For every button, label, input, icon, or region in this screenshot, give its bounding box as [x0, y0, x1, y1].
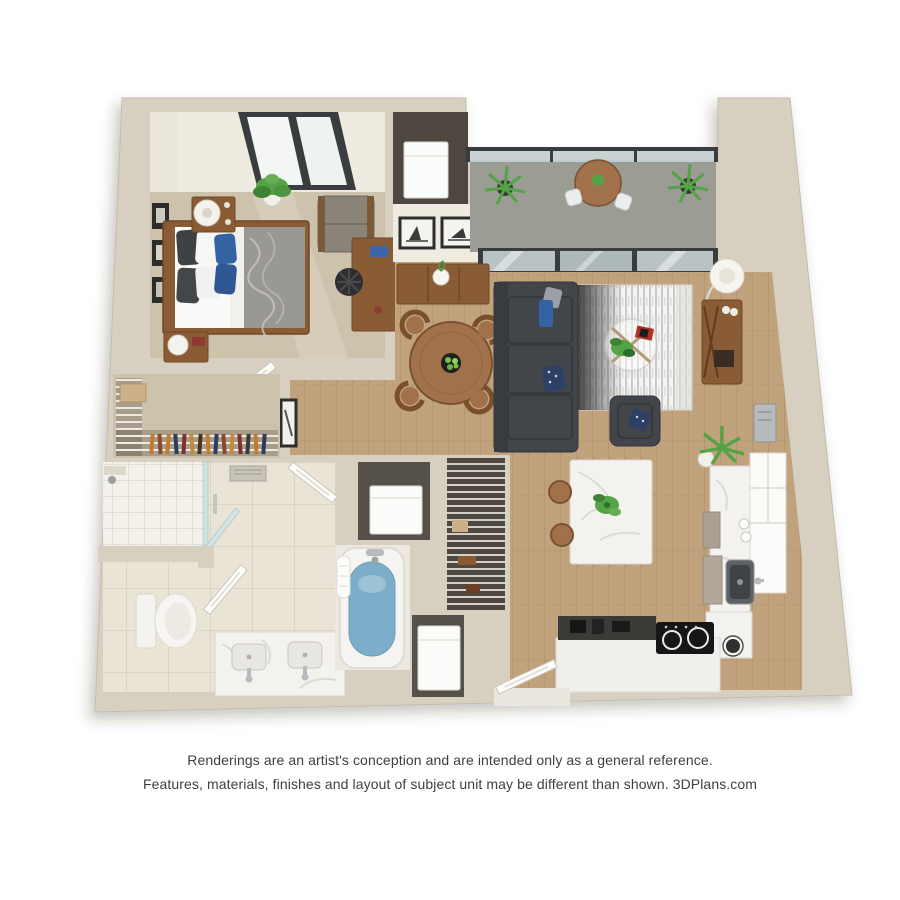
shower-glass: [203, 462, 208, 546]
balcony: [466, 147, 718, 274]
hanging-clothes: [149, 434, 266, 454]
washer-closet: [358, 462, 430, 540]
shelf-item: [466, 584, 480, 593]
bed: [163, 221, 309, 342]
bedroom-window: [238, 112, 356, 190]
towel-bar: [213, 494, 217, 514]
shelf-item: [458, 556, 476, 565]
sliding-glass-door: [478, 248, 718, 274]
book: [192, 337, 205, 346]
walk-in-closet: [113, 374, 280, 458]
disclaimer-line-1: Renderings are an artist's conception an…: [0, 748, 900, 772]
navy-pillow: [541, 364, 566, 392]
linen-closet: [447, 458, 505, 610]
towel: [337, 556, 350, 598]
kettle: [726, 639, 740, 653]
sideboard: [397, 261, 489, 304]
lower-cabinet: [703, 512, 720, 548]
utility-closet: [393, 112, 468, 204]
floorplan-page: Renderings are an artist's conception an…: [0, 0, 900, 900]
canister: [739, 519, 749, 529]
wire-shelving-south: [116, 430, 278, 456]
centerpiece-bowl: [441, 353, 461, 373]
basket: [452, 520, 468, 532]
kitchen-island: [570, 460, 652, 564]
toilet: [136, 594, 197, 648]
disclaimer-line-2: Features, materials, finishes and layout…: [0, 772, 900, 796]
exhaust-vent: [230, 466, 266, 481]
gallery-wall: [393, 204, 478, 262]
bathtub: [335, 545, 410, 670]
floorplan-render: [0, 0, 900, 745]
table-lamp: [168, 335, 188, 355]
coffee-table: [605, 319, 657, 371]
water-heater: [404, 142, 448, 198]
floorplan-svg: [0, 0, 900, 745]
framed-art-1: [400, 218, 434, 248]
dishwasher: [703, 556, 722, 604]
cooktop: [656, 622, 714, 654]
wall-panel: [754, 404, 776, 442]
double-vanity: [215, 632, 345, 696]
laptop: [370, 246, 388, 257]
alcove-wall: [98, 546, 210, 562]
bar-stool: [551, 524, 573, 546]
nightstand-upper: [192, 197, 235, 232]
balcony-chair: [564, 188, 582, 206]
balcony-railing: [466, 147, 718, 162]
dryer-closet: [412, 615, 464, 697]
canister: [741, 532, 751, 542]
media-console: [702, 300, 742, 384]
shower-head: [108, 476, 116, 484]
disclaimer: Renderings are an artist's conception an…: [0, 748, 900, 796]
accent-armchair: [610, 396, 660, 446]
storage-box: [120, 384, 146, 402]
sectional-sofa: [494, 282, 578, 452]
nightstand-lower: [164, 332, 208, 362]
bar-stool: [549, 481, 571, 503]
shower-niche: [104, 466, 126, 475]
vase: [433, 269, 449, 285]
blue-pillow: [539, 300, 553, 327]
